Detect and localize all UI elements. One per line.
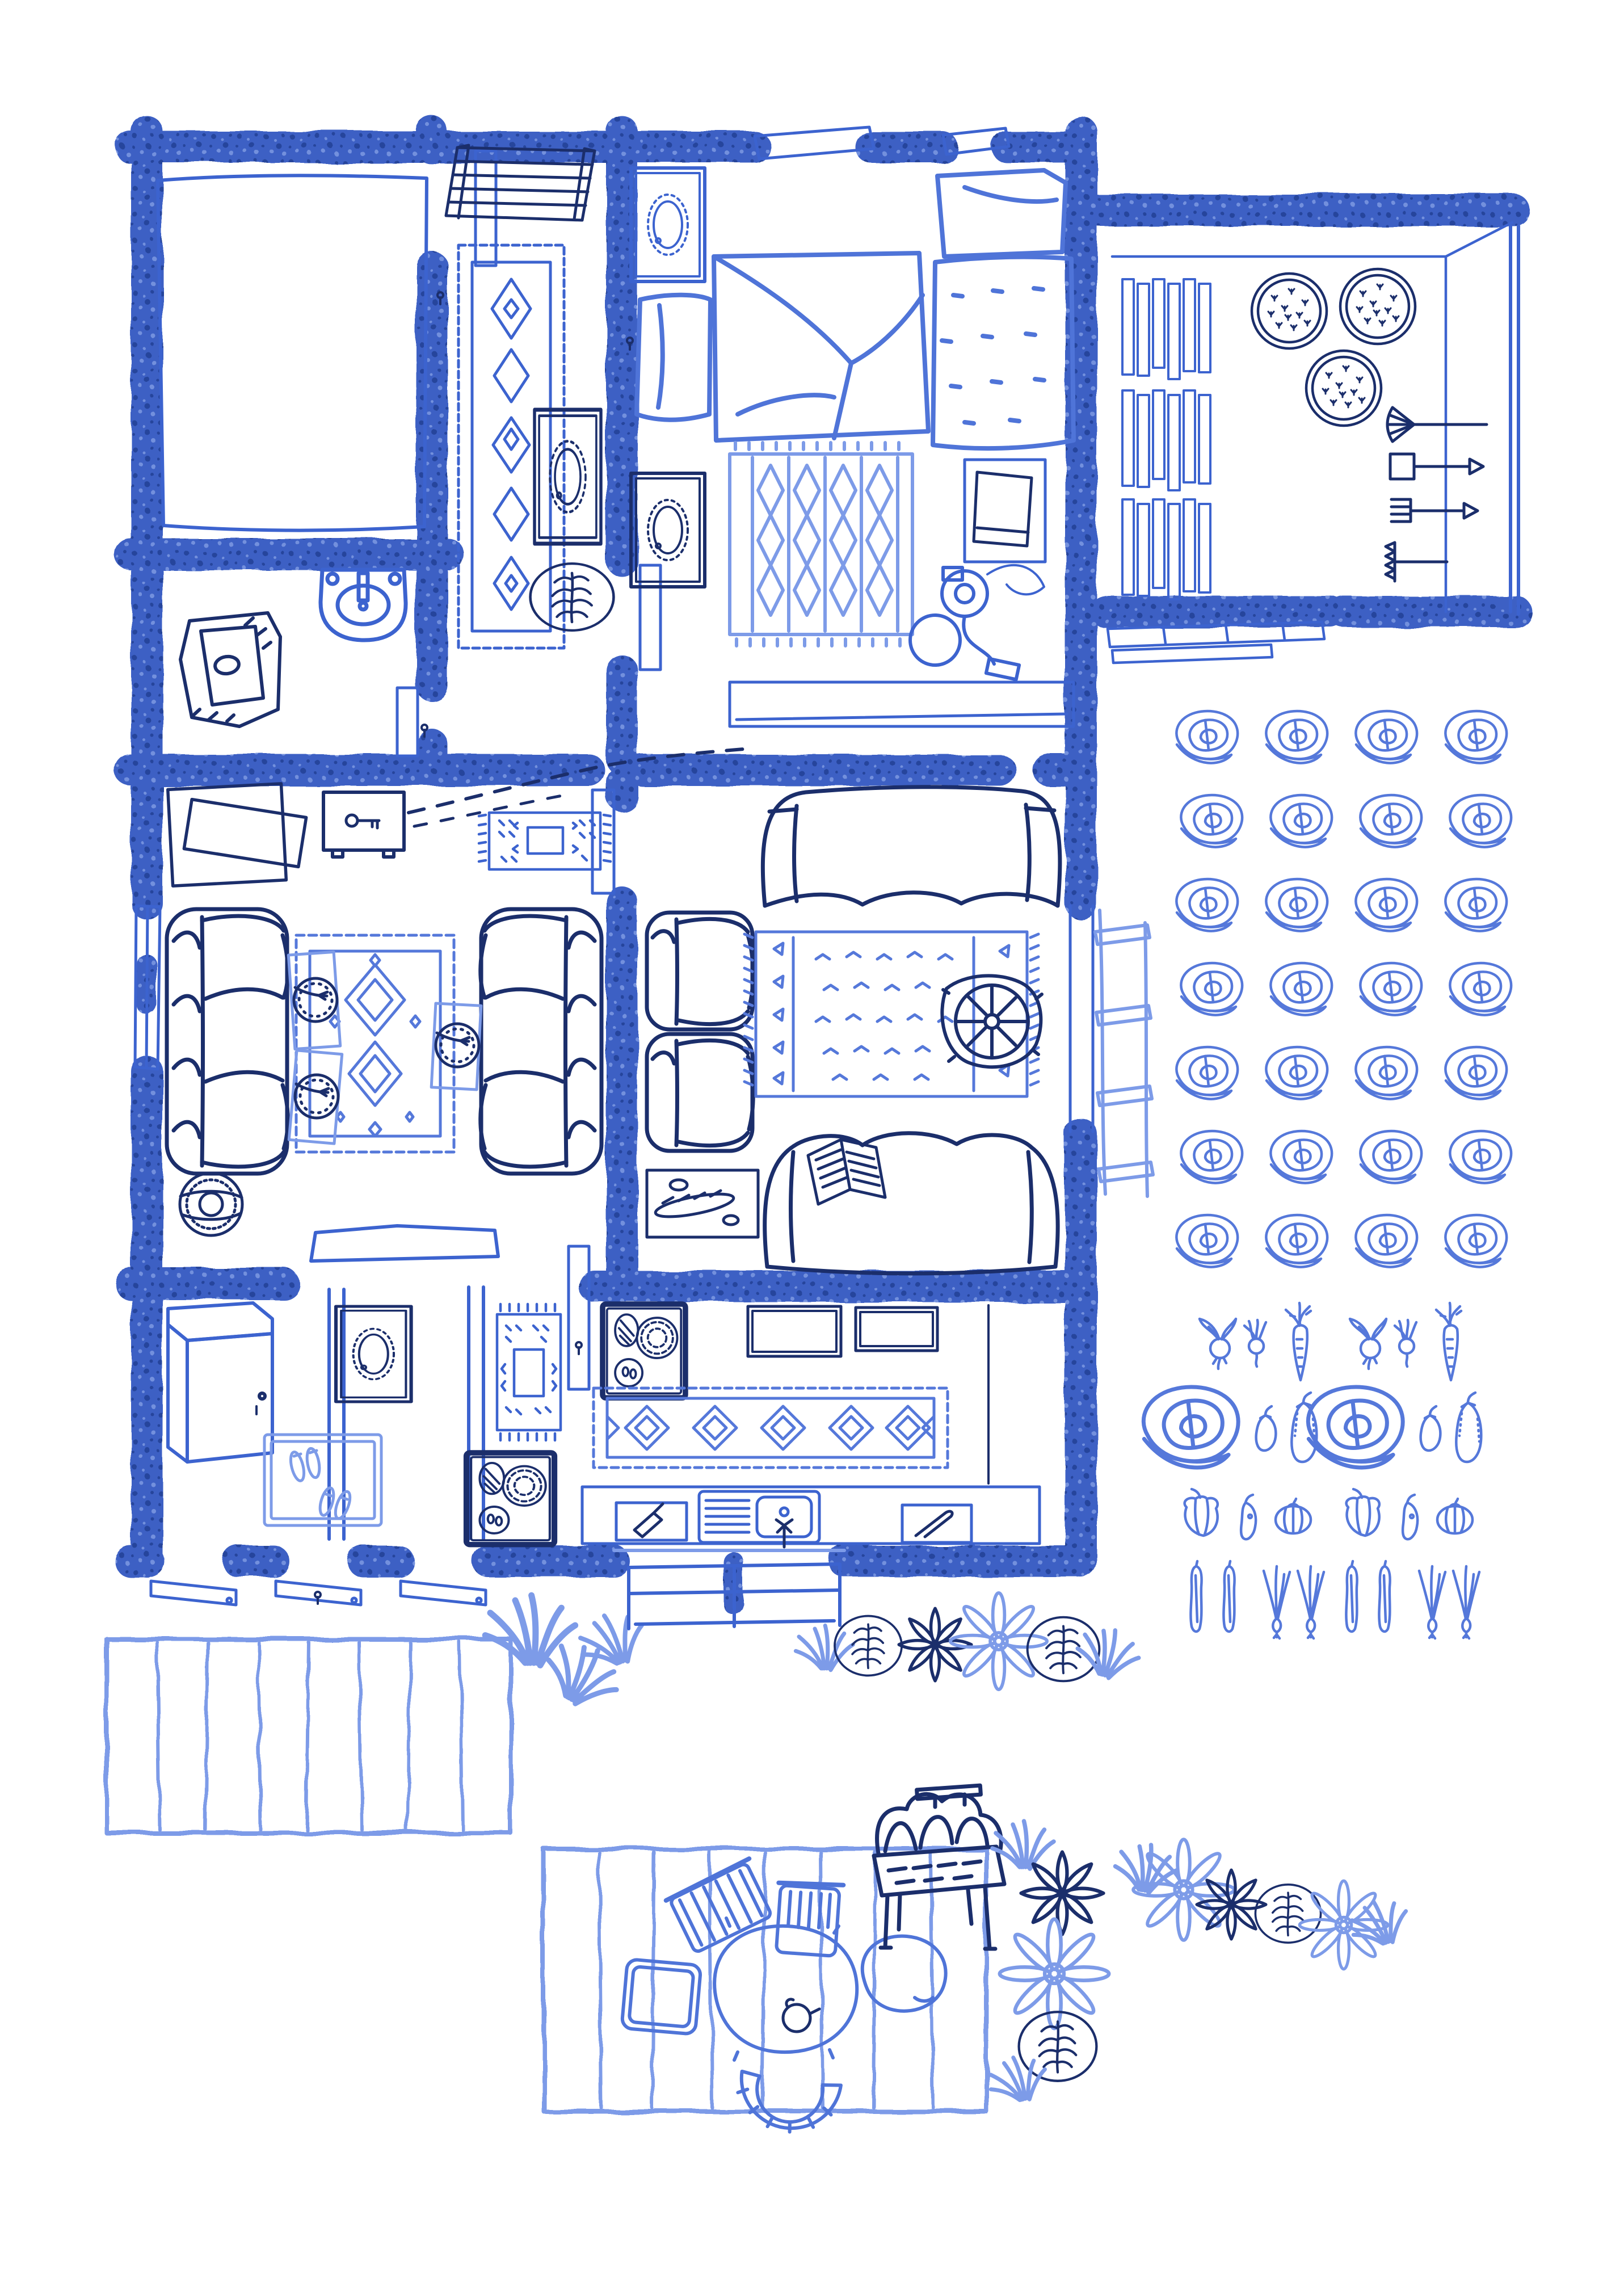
open-wardrobe: [168, 1303, 272, 1462]
prep-table-1: [748, 1306, 841, 1356]
vegetable-rows: [1143, 1303, 1481, 1638]
framed-picture-b: [631, 473, 705, 587]
room-bedroom: [631, 168, 1074, 726]
scanned-floor-plan: [0, 0, 1624, 2270]
area-rug-outline: [158, 175, 427, 530]
serving-board: [647, 1170, 758, 1237]
flower-bed-patio-right: [985, 1821, 1109, 2108]
hall-runner-rug: [458, 245, 564, 648]
exterior-ladder-shelf: [1095, 910, 1153, 1196]
potted-plant: [531, 564, 614, 630]
room-living: [167, 749, 743, 1235]
bed-tufted: [933, 170, 1074, 448]
cabbage-grid: [1176, 711, 1511, 1267]
room-storage: [158, 175, 427, 530]
room-hallway: [446, 145, 613, 648]
left-deck: [107, 1639, 511, 1833]
walls: [131, 132, 1516, 1604]
prep-table-2: [856, 1308, 937, 1351]
bedroom-rug: [730, 443, 912, 646]
sofa-chesterfield-right: [481, 909, 601, 1174]
pillow: [637, 295, 710, 420]
patio-deck: [544, 1849, 986, 2111]
room-kitchen: [582, 1304, 1040, 1547]
seed-trays: [1252, 269, 1415, 426]
floor-plan-canvas: [0, 0, 1624, 2270]
food-tray-kitchen: [603, 1304, 685, 1398]
window-right-wall: [1070, 906, 1093, 1132]
round-basket: [180, 1173, 242, 1235]
sink-unit: [699, 1491, 819, 1547]
fringed-rug-entry: [497, 1304, 561, 1440]
spade-icon: [1390, 454, 1483, 479]
writing-desk: [168, 784, 306, 886]
boardwalk: [1108, 622, 1324, 663]
tv-screen: [965, 460, 1045, 562]
cutting-board-left: [616, 1503, 687, 1540]
flower-bed-porch: [796, 1593, 1144, 1689]
sofa-chesterfield-left: [167, 909, 288, 1174]
open-book: [808, 1140, 885, 1204]
armchair-1: [647, 913, 753, 1029]
side-table-plate-3: [431, 1003, 481, 1090]
room-lounge: [647, 787, 1060, 1273]
teapot: [783, 1999, 819, 2032]
door-leaf-bathroom: [397, 688, 418, 756]
slat-chair: [666, 1859, 776, 1954]
mudcloth-rug-small: [479, 813, 611, 869]
pillow: [937, 170, 1066, 257]
doormat-with-slippers: [264, 1435, 381, 1525]
cutting-board-right: [902, 1505, 971, 1542]
rake-icon: [1387, 407, 1487, 442]
door-leaf-storage: [476, 151, 496, 266]
room-bathroom: [180, 570, 406, 726]
seed-flats: [1122, 279, 1210, 599]
key-icon: [346, 815, 379, 828]
framed-lace-board: [535, 410, 601, 544]
low-shelf: [730, 682, 1074, 726]
vacuum-cleaner: [910, 565, 1044, 679]
u-shaped-chair: [734, 2071, 841, 2138]
flower-border-right: [1112, 1839, 1413, 1969]
small-slat-chair: [774, 1881, 844, 1957]
armchair-2: [647, 1034, 753, 1151]
door-leaf-kitchen: [569, 1246, 589, 1389]
curved-sofa: [763, 787, 1060, 906]
key-side-table: [323, 792, 404, 857]
wall-sink: [321, 570, 406, 640]
patio-furniture: [621, 1785, 1004, 2138]
framed-picture-a: [631, 168, 705, 281]
framed-lace-picture-entry: [336, 1306, 411, 1402]
sofa-with-book: [765, 1133, 1058, 1273]
square-chair: [621, 1959, 701, 2034]
squat-toilet: [180, 613, 280, 726]
food-tray-entry: [466, 1453, 554, 1545]
porch-steps: [629, 1564, 840, 1629]
pitchfork-icon: [1391, 499, 1478, 522]
living-rug: [296, 935, 454, 1152]
hand-rake-icon: [1386, 543, 1447, 581]
